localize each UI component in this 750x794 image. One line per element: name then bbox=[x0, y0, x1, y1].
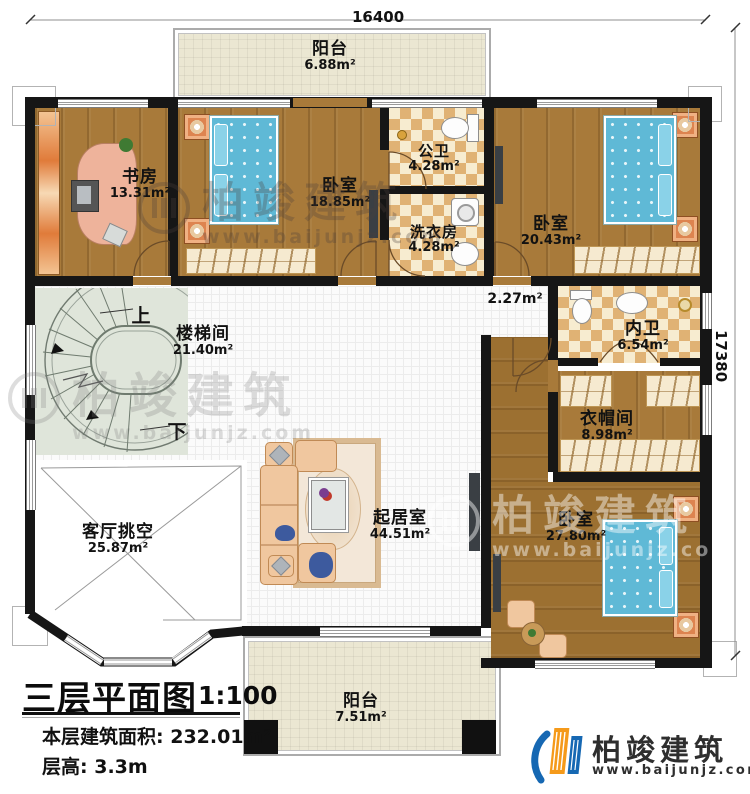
pillow bbox=[659, 570, 673, 608]
floor-height-label: 层高: bbox=[42, 756, 88, 778]
nightstand bbox=[184, 218, 210, 244]
floor-area-value: 232.01m² bbox=[170, 726, 271, 748]
label-balcony-bottom: 阳台 7.51m² bbox=[335, 692, 386, 725]
floor-plan-canvas: 16400 17380 bbox=[0, 0, 750, 794]
person bbox=[309, 552, 333, 578]
door-threshold bbox=[380, 150, 389, 189]
dimension-right: 17380 bbox=[712, 330, 730, 382]
floor-height-value: 3.3m bbox=[94, 756, 147, 778]
company-logo-url: www.baijunjz.com bbox=[592, 763, 750, 778]
stairwell-area bbox=[35, 288, 188, 455]
pillow bbox=[214, 124, 228, 166]
cushion bbox=[269, 445, 290, 466]
bed bbox=[604, 116, 676, 224]
coffee-table bbox=[311, 480, 346, 530]
pillow bbox=[658, 124, 672, 166]
corridor-floor bbox=[491, 337, 548, 482]
toilet-icon bbox=[441, 117, 469, 139]
room-bedroom3 bbox=[491, 482, 700, 658]
wardrobe bbox=[186, 248, 316, 274]
wall bbox=[553, 472, 712, 482]
washer-drum bbox=[457, 204, 475, 222]
dimension-top: 16400 bbox=[352, 8, 404, 26]
stairs-down-label: 下 bbox=[167, 417, 186, 444]
wall bbox=[548, 392, 558, 472]
sliding-door bbox=[320, 627, 430, 637]
label-bedroom2: 卧室 20.43m² bbox=[521, 215, 581, 248]
nightstand bbox=[184, 114, 210, 140]
label-bedroom3: 卧室 27.80m² bbox=[546, 511, 606, 544]
label-stairwell: 楼梯间 21.40m² bbox=[173, 325, 233, 358]
label-living-room: 起居室 44.51m² bbox=[370, 509, 430, 542]
label-study: 书房 13.31m² bbox=[110, 168, 170, 201]
company-logo-icon bbox=[531, 722, 587, 786]
wall bbox=[660, 358, 700, 366]
door-threshold bbox=[380, 240, 389, 276]
wardrobe bbox=[574, 246, 700, 274]
window bbox=[702, 293, 712, 329]
bed bbox=[210, 116, 278, 224]
wall bbox=[531, 276, 712, 286]
label-living-void: 客厅挑空 25.87m² bbox=[82, 523, 154, 556]
cushion bbox=[271, 556, 291, 576]
window bbox=[372, 99, 482, 108]
window bbox=[535, 660, 655, 669]
window bbox=[702, 385, 712, 435]
window bbox=[26, 440, 36, 510]
room-bedroom2 bbox=[494, 108, 700, 276]
bed bbox=[603, 520, 677, 616]
door-threshold bbox=[338, 277, 376, 285]
door-threshold bbox=[133, 277, 171, 285]
wall bbox=[548, 286, 558, 360]
wall bbox=[700, 97, 712, 668]
window bbox=[178, 99, 290, 108]
wall bbox=[171, 276, 338, 286]
tv bbox=[369, 190, 378, 238]
wardrobe-rack bbox=[646, 375, 700, 407]
toilet-icon bbox=[572, 298, 592, 324]
flowers bbox=[319, 488, 329, 498]
wall bbox=[481, 335, 491, 628]
wall bbox=[376, 276, 493, 286]
armchair bbox=[268, 555, 294, 577]
label-cloakroom: 衣帽间 8.98m² bbox=[580, 410, 634, 443]
window bbox=[58, 99, 148, 108]
sofa-seat bbox=[295, 440, 337, 472]
floor-height-line: 层高: 3.3m bbox=[42, 752, 148, 779]
tv bbox=[493, 554, 501, 612]
wall bbox=[384, 186, 489, 194]
spiral-stairs bbox=[35, 288, 188, 455]
title-underline bbox=[22, 712, 240, 715]
column bbox=[462, 720, 496, 754]
title-underline-thin bbox=[22, 717, 240, 718]
nightstand bbox=[673, 496, 699, 522]
shower-head bbox=[678, 298, 692, 312]
person bbox=[275, 525, 295, 541]
pillow bbox=[659, 527, 673, 565]
window bbox=[537, 99, 657, 108]
tv bbox=[495, 146, 503, 204]
wardrobe-rack bbox=[560, 439, 700, 472]
label-public-bath: 公卫 4.28m² bbox=[408, 143, 459, 174]
label-balcony-top: 阳台 6.88m² bbox=[304, 40, 355, 73]
wall bbox=[558, 358, 598, 366]
wardrobe-rack bbox=[560, 375, 612, 407]
window bbox=[26, 325, 36, 395]
pillow bbox=[214, 174, 228, 216]
label-bedroom1: 卧室 18.85m² bbox=[310, 177, 370, 210]
tv bbox=[469, 473, 480, 551]
monitor-screen bbox=[77, 186, 91, 204]
label-inner-bath: 内卫 6.54m² bbox=[617, 320, 668, 353]
cabinet bbox=[38, 111, 60, 275]
door-threshold bbox=[493, 277, 531, 285]
plant bbox=[528, 629, 536, 637]
plant bbox=[119, 138, 133, 152]
floor-area-label: 本层建筑面积: bbox=[42, 726, 164, 748]
wall bbox=[25, 276, 133, 286]
plan-scale: 1:100 bbox=[198, 681, 278, 710]
door-threshold bbox=[293, 98, 367, 107]
sink bbox=[616, 292, 648, 314]
stairs-up-label: 上 bbox=[131, 301, 150, 328]
label-corridor-area: 2.27m² bbox=[487, 292, 542, 307]
label-laundry: 洗衣房 4.28m² bbox=[408, 224, 459, 255]
floor-area-line: 本层建筑面积: 232.01m² bbox=[42, 722, 272, 749]
pillow bbox=[658, 174, 672, 216]
door-threshold bbox=[548, 360, 558, 392]
door-knob bbox=[397, 130, 407, 140]
